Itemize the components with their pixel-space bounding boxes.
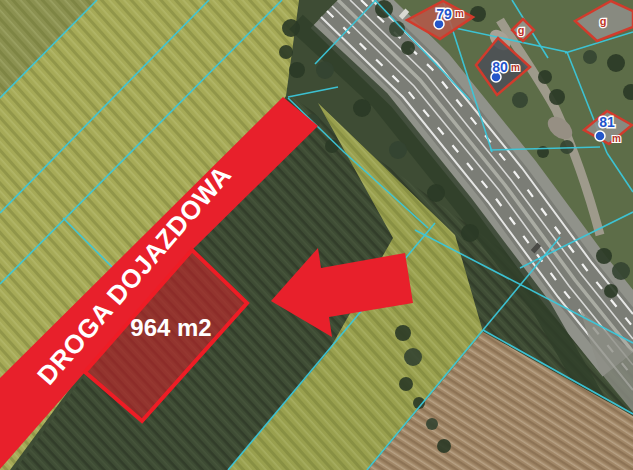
building-letter-label: m xyxy=(511,62,520,73)
aerial-background xyxy=(0,0,633,470)
building-letter-label: g xyxy=(600,15,607,27)
address-number-label: 80 xyxy=(492,59,508,75)
building-letter-label: m xyxy=(455,8,464,19)
building-letter-label: g xyxy=(518,24,525,36)
parcel-area-label: 964 m2 xyxy=(130,314,211,341)
map-svg: DROGA DOJAZDOWA964 m279m80m81mgg xyxy=(0,0,633,470)
address-number-label: 81 xyxy=(599,114,615,130)
address-balloon-icon xyxy=(595,131,605,141)
address-number-label: 79 xyxy=(436,6,452,22)
aerial-map-canvas: DROGA DOJAZDOWA964 m279m80m81mgg xyxy=(0,0,633,470)
building-letter-label: m xyxy=(612,133,621,144)
